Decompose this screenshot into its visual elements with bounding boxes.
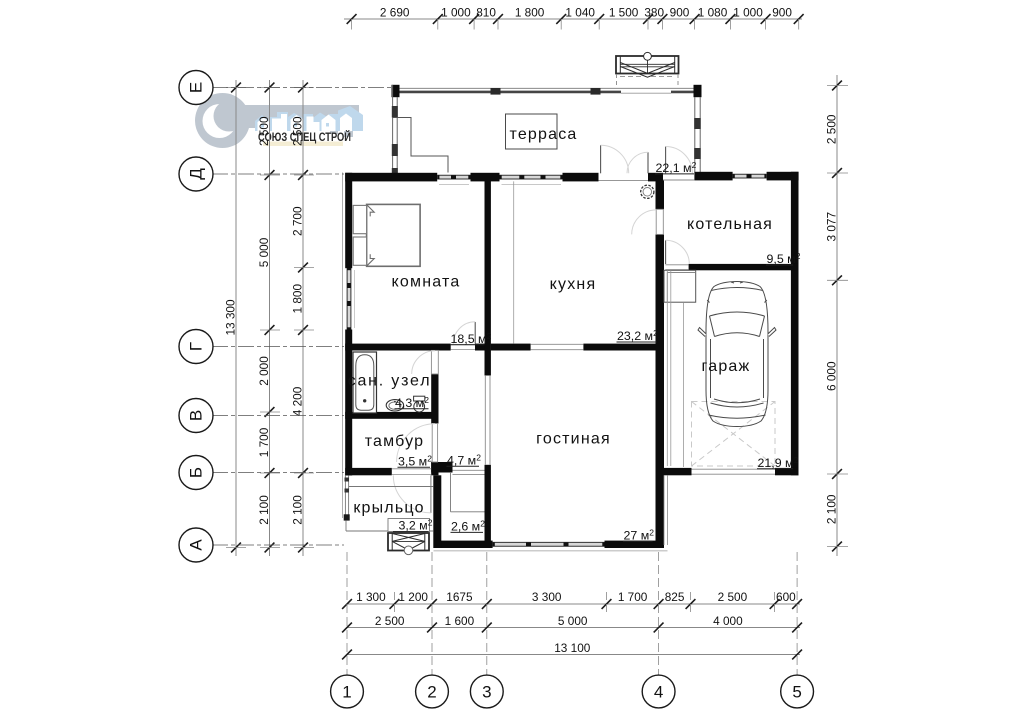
svg-text:котельная: котельная (687, 216, 773, 233)
svg-text:2,6 м2: 2,6 м2 (451, 519, 485, 534)
svg-text:1 000: 1 000 (441, 6, 471, 20)
svg-text:крыльцо: крыльцо (353, 500, 424, 517)
svg-text:3 300: 3 300 (532, 590, 562, 604)
svg-text:2 690: 2 690 (380, 6, 410, 20)
svg-text:22,1 м2: 22,1 м2 (656, 160, 697, 175)
svg-text:2 500: 2 500 (718, 590, 748, 604)
svg-text:13 100: 13 100 (554, 641, 591, 655)
svg-text:тамбур: тамбур (365, 433, 425, 450)
svg-text:2 100: 2 100 (257, 495, 271, 525)
svg-text:3: 3 (482, 683, 491, 702)
svg-text:4 000: 4 000 (713, 614, 743, 628)
svg-text:5 000: 5 000 (558, 614, 588, 628)
svg-text:2 000: 2 000 (257, 356, 271, 386)
svg-text:Г: Г (187, 342, 206, 351)
svg-text:терраса: терраса (509, 126, 577, 143)
svg-text:900: 900 (772, 6, 792, 20)
svg-text:825: 825 (665, 590, 685, 604)
svg-text:гостиная: гостиная (536, 431, 611, 448)
svg-text:2 500: 2 500 (257, 116, 271, 146)
svg-text:5 000: 5 000 (257, 237, 271, 267)
svg-text:Б: Б (187, 467, 206, 478)
svg-text:1 800: 1 800 (291, 284, 305, 314)
svg-text:2 500: 2 500 (291, 116, 305, 146)
svg-text:1675: 1675 (446, 590, 473, 604)
svg-text:2 500: 2 500 (824, 114, 838, 144)
svg-text:810: 810 (476, 6, 496, 20)
svg-text:3 077: 3 077 (824, 212, 838, 242)
svg-text:5: 5 (792, 683, 801, 702)
svg-text:4 200: 4 200 (291, 386, 305, 416)
svg-text:комната: комната (392, 274, 461, 291)
svg-text:Е: Е (187, 82, 206, 93)
svg-text:2 500: 2 500 (375, 614, 405, 628)
svg-text:3,5 м2: 3,5 м2 (398, 454, 432, 469)
svg-text:23,2 м2: 23,2 м2 (617, 328, 658, 343)
svg-text:380: 380 (644, 6, 664, 20)
svg-text:А: А (187, 539, 206, 551)
svg-text:4,7 м2: 4,7 м2 (447, 453, 481, 468)
svg-text:21,9 м2: 21,9 м2 (758, 455, 799, 470)
svg-text:1: 1 (342, 683, 351, 702)
svg-text:1 700: 1 700 (618, 590, 648, 604)
svg-text:600: 600 (776, 590, 796, 604)
svg-text:гараж: гараж (702, 358, 751, 375)
svg-text:4: 4 (654, 683, 663, 702)
svg-text:1 700: 1 700 (257, 427, 271, 457)
svg-text:1 800: 1 800 (515, 6, 545, 20)
svg-text:4,3 м2: 4,3 м2 (395, 395, 429, 410)
svg-text:1 000: 1 000 (733, 6, 763, 20)
svg-text:9,5 м2: 9,5 м2 (767, 251, 801, 266)
svg-text:1 080: 1 080 (698, 6, 728, 20)
svg-text:2: 2 (427, 683, 436, 702)
svg-text:6 000: 6 000 (824, 361, 838, 391)
svg-text:1 600: 1 600 (445, 614, 475, 628)
svg-text:3,2 м2: 3,2 м2 (399, 518, 433, 533)
svg-text:18,5 м2: 18,5 м2 (451, 331, 492, 346)
svg-text:2 100: 2 100 (824, 494, 838, 524)
svg-text:2 700: 2 700 (291, 206, 305, 236)
svg-text:2 100: 2 100 (291, 495, 305, 525)
svg-text:900: 900 (670, 6, 690, 20)
svg-text:1 040: 1 040 (565, 6, 595, 20)
svg-text:сан. узел: сан. узел (348, 373, 432, 390)
svg-text:В: В (187, 410, 206, 421)
svg-text:1 300: 1 300 (356, 590, 386, 604)
svg-text:13 300: 13 300 (224, 299, 238, 336)
svg-text:кухня: кухня (550, 276, 597, 293)
svg-text:1 200: 1 200 (398, 590, 428, 604)
svg-text:Д: Д (187, 168, 206, 180)
svg-text:1 500: 1 500 (609, 6, 639, 20)
